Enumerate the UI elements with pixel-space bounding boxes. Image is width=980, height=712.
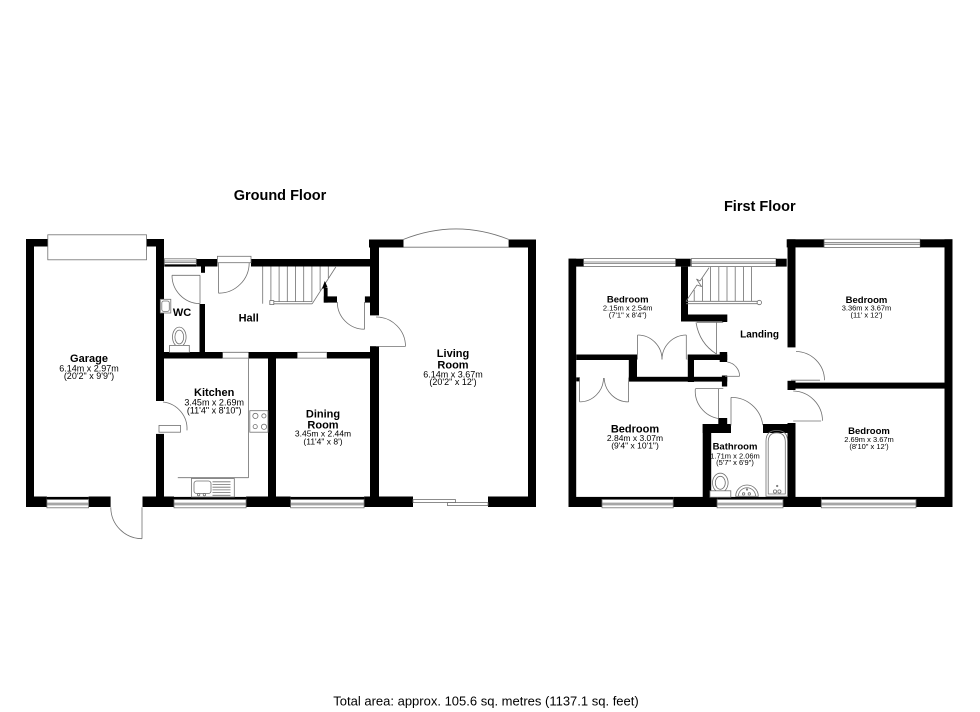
svg-text:(8'10" x 12'): (8'10" x 12') — [849, 442, 889, 451]
svg-text:(20'2" x 9'9"): (20'2" x 9'9") — [64, 371, 114, 381]
svg-text:(11'4" x 8'): (11'4" x 8') — [303, 436, 342, 446]
svg-text:Living: Living — [437, 348, 469, 360]
svg-text:(5'7" x 6'9"): (5'7" x 6'9") — [716, 458, 754, 467]
svg-text:First Floor: First Floor — [724, 199, 796, 215]
svg-text:Hall: Hall — [239, 312, 259, 324]
svg-text:Total area: approx. 105.6 sq.: Total area: approx. 105.6 sq. metres (11… — [333, 694, 638, 709]
svg-text:WC: WC — [173, 307, 191, 319]
svg-text:(11' x 12'): (11' x 12') — [851, 310, 883, 319]
svg-text:(11'4" x 8'10"): (11'4" x 8'10") — [187, 406, 242, 416]
svg-text:(9'4" x 10'1"): (9'4" x 10'1") — [611, 440, 659, 450]
svg-text:Landing: Landing — [740, 329, 779, 340]
svg-text:Ground Floor: Ground Floor — [234, 188, 327, 204]
svg-text:(7'1" x 8'4"): (7'1" x 8'4") — [609, 311, 647, 320]
svg-text:(20'2" x 12'): (20'2" x 12') — [429, 377, 476, 387]
